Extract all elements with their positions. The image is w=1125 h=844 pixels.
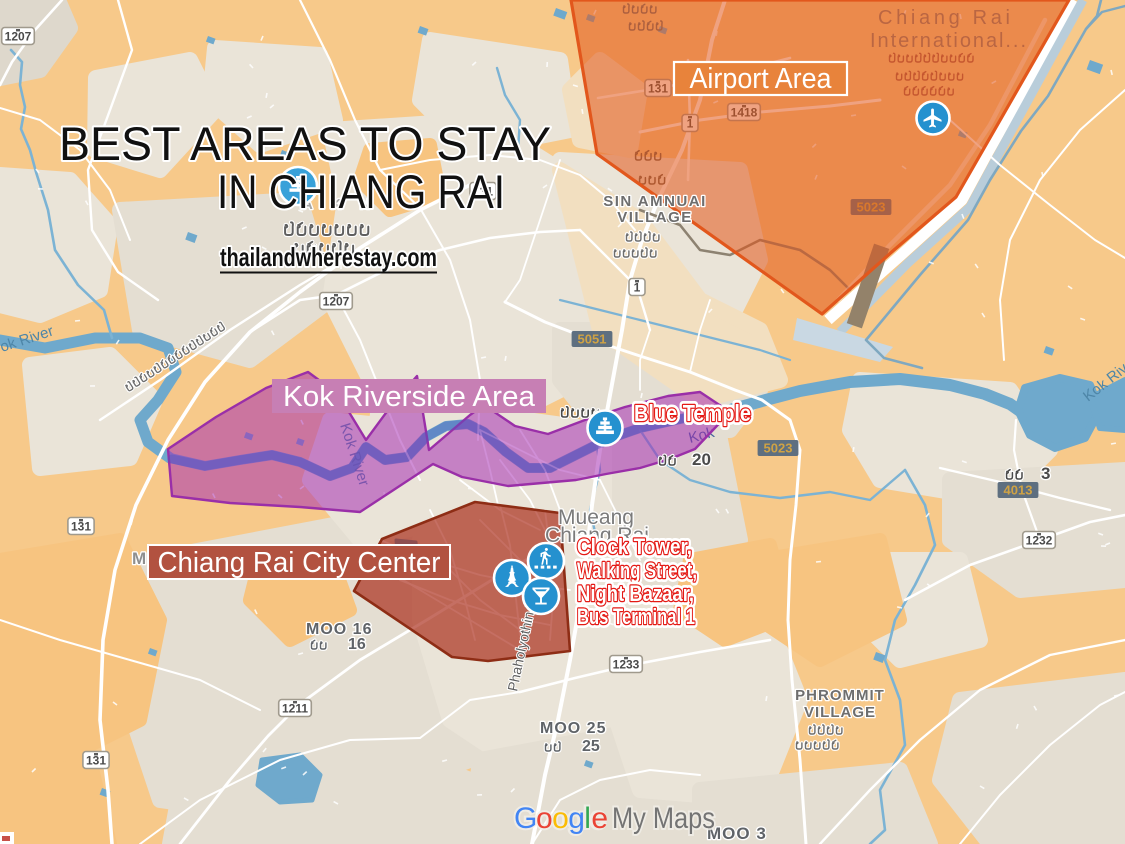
svg-text:16: 16 xyxy=(348,636,366,653)
svg-text:3: 3 xyxy=(1041,464,1050,483)
svg-text:Blue Temple: Blue Temple xyxy=(634,400,751,426)
svg-text:131: 131 xyxy=(71,520,91,534)
svg-text:M: M xyxy=(132,549,146,568)
svg-text:VILLAGE: VILLAGE xyxy=(617,209,693,226)
svg-text:SIN AMNUAI: SIN AMNUAI xyxy=(603,193,707,210)
svg-text:Walking Street,: Walking Street, xyxy=(577,558,697,583)
svg-text:MOO 25: MOO 25 xyxy=(540,720,606,737)
svg-text:1233: 1233 xyxy=(613,658,640,672)
svg-text:5023: 5023 xyxy=(764,441,793,456)
svg-text:Kok Riverside Area: Kok Riverside Area xyxy=(283,381,536,413)
svg-text:Airport Area: Airport Area xyxy=(690,63,833,95)
svg-text:Bus Terminal 1: Bus Terminal 1 xyxy=(577,604,695,629)
svg-text:5051: 5051 xyxy=(578,332,607,347)
svg-text:4013: 4013 xyxy=(1004,483,1033,498)
svg-text:BEST AREAS TO STAY: BEST AREAS TO STAY xyxy=(59,117,551,170)
svg-text:1211: 1211 xyxy=(282,702,308,716)
svg-text:VILLAGE: VILLAGE xyxy=(804,704,876,721)
svg-text:20: 20 xyxy=(692,450,711,469)
svg-text:Google: Google xyxy=(514,802,608,835)
svg-text:1207: 1207 xyxy=(323,295,350,309)
svg-text:MOO 3: MOO 3 xyxy=(707,824,767,843)
svg-text:Chiang Rai City Center: Chiang Rai City Center xyxy=(158,547,441,579)
svg-text:My Maps: My Maps xyxy=(612,802,715,835)
svg-text:Night Bazaar,: Night Bazaar, xyxy=(577,581,694,606)
svg-text:1232: 1232 xyxy=(1026,534,1053,548)
svg-text:1: 1 xyxy=(634,281,641,295)
svg-text:IN CHIANG RAI: IN CHIANG RAI xyxy=(217,165,505,218)
svg-text:1207: 1207 xyxy=(5,30,32,44)
svg-text:PHROMMIT: PHROMMIT xyxy=(795,687,885,704)
svg-text:thailandwherestay.com: thailandwherestay.com xyxy=(220,242,437,272)
svg-text:25: 25 xyxy=(582,738,600,755)
svg-text:Clock Tower,: Clock Tower, xyxy=(577,534,692,559)
svg-text:131: 131 xyxy=(86,754,106,768)
